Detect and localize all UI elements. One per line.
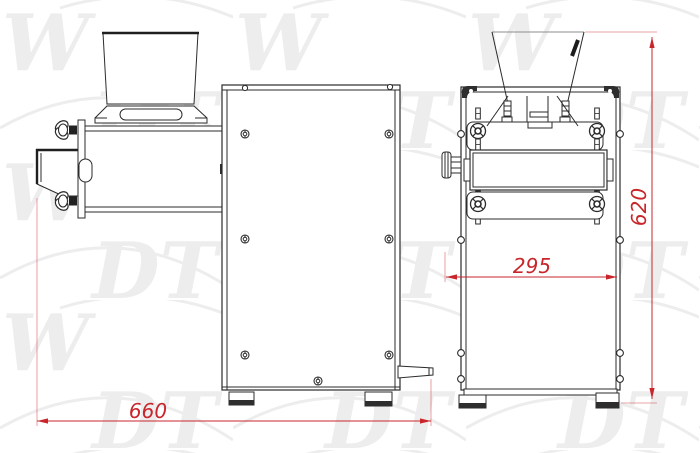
corner-screw	[469, 89, 473, 93]
machine-drawing: W DT	[0, 0, 700, 453]
hopper-rail-right	[560, 101, 570, 122]
roller-bracket-bottom	[467, 192, 603, 219]
roller	[464, 150, 613, 190]
roller-cap-right	[607, 159, 613, 181]
dim-label-620: 620	[627, 188, 651, 226]
hopper-rail-left	[502, 101, 512, 122]
corner-screw	[608, 89, 612, 93]
hopper-side	[102, 33, 199, 104]
corner-screw-left	[242, 85, 247, 90]
corner-screw-right	[387, 84, 392, 89]
hopper-mount-plate	[95, 106, 207, 123]
dim-label-295: 295	[513, 254, 551, 278]
latch-tab	[79, 159, 92, 182]
roller-cap-left	[464, 159, 470, 181]
roller-housing-side	[78, 120, 223, 218]
dim-label-660: 660	[129, 399, 167, 423]
technical-drawing-canvas: W DT	[0, 0, 700, 453]
front-view	[442, 32, 623, 408]
